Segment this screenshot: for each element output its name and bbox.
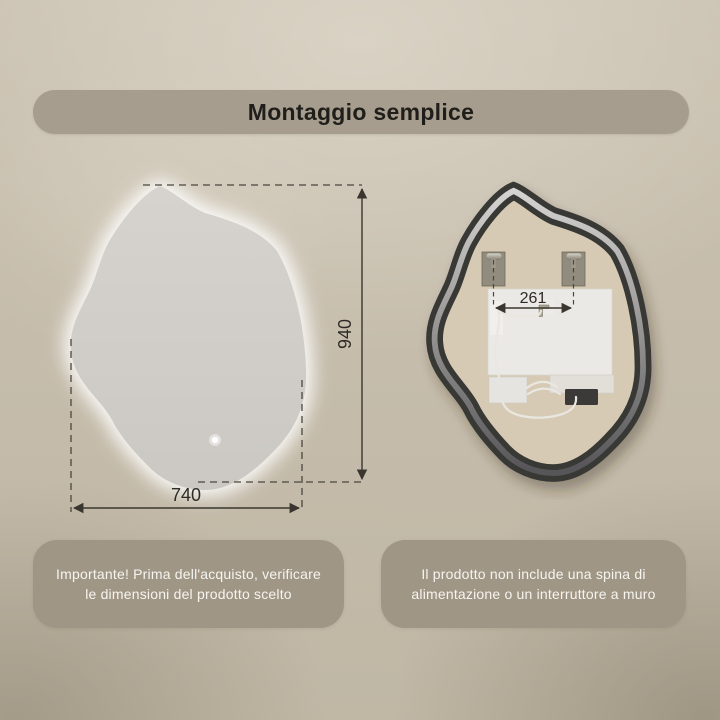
note-right-line-1: Il prodotto non include una spina di	[421, 564, 645, 584]
front-view-diagram: 940 740	[40, 160, 380, 530]
note-right-line-2: alimentazione o un interruttore a muro	[411, 584, 655, 604]
width-dimension-label: 740	[171, 485, 201, 505]
junction-box	[489, 377, 527, 403]
note-card-left: Importante! Prima dell'acquisto, verific…	[33, 540, 344, 628]
back-view-diagram: 261	[410, 165, 680, 500]
mirror-front-surface	[71, 186, 306, 490]
note-left-line-2: le dimensioni del prodotto scelto	[85, 584, 292, 604]
power-connector	[565, 389, 598, 405]
led-indicator-dot	[212, 437, 218, 443]
title-text: Montaggio semplice	[248, 99, 474, 126]
panel-left-strip	[490, 301, 503, 335]
note-left-line-1: Importante! Prima dell'acquisto, verific…	[56, 564, 321, 584]
bracket-distance-label: 261	[520, 290, 547, 307]
note-card-right: Il prodotto non include una spina di ali…	[381, 540, 686, 628]
height-dimension-label: 940	[335, 319, 355, 349]
title-banner: Montaggio semplice	[33, 90, 689, 134]
